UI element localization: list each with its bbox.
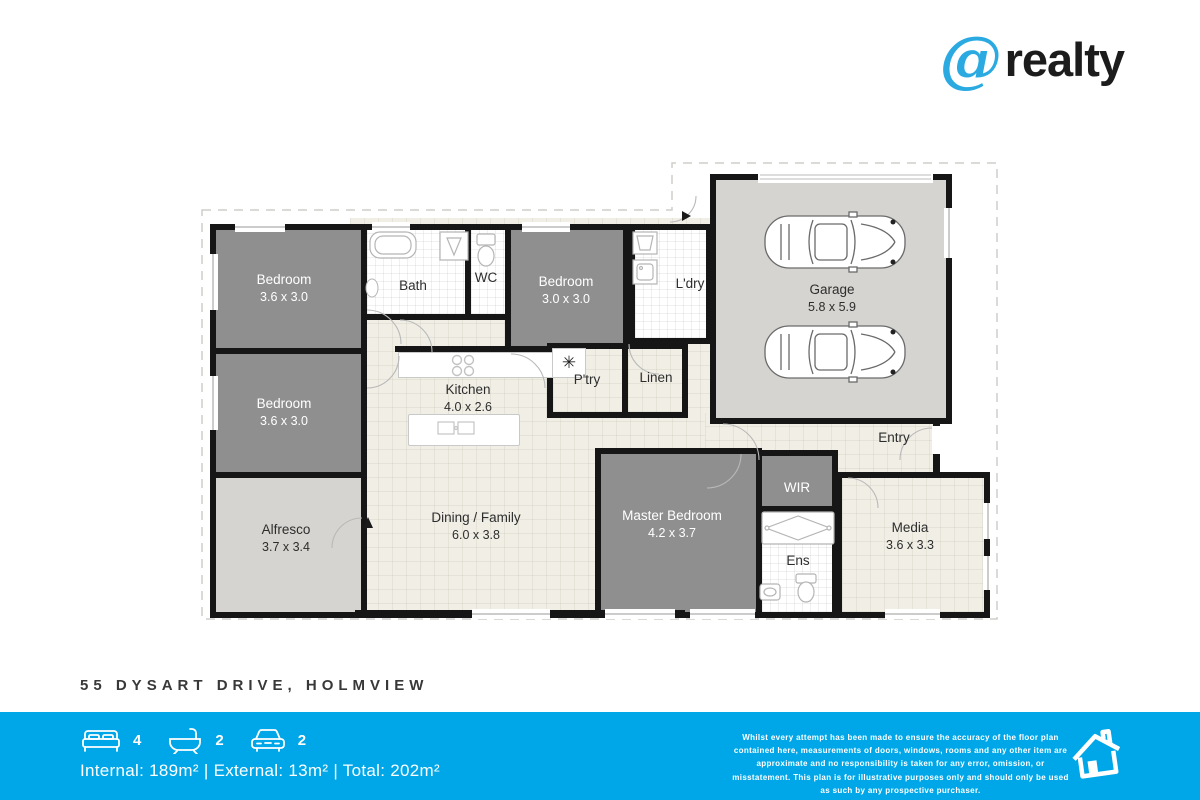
- beds-count: 4: [133, 732, 141, 749]
- logo-at-icon: @: [940, 28, 1002, 90]
- realty-logo: @ realty: [940, 28, 1124, 90]
- area-summary: Internal: 189m² | External: 13m² | Total…: [80, 761, 440, 781]
- room-label-master-bedroom: Master Bedroom4.2 x 3.7: [622, 507, 722, 541]
- kitchen-bench: [398, 352, 554, 378]
- room-label-bedroom-1: Bedroom3.6 x 3.0: [257, 271, 312, 305]
- car-icon: [249, 727, 287, 754]
- room-label-kitchen: Kitchen4.0 x 2.6: [444, 381, 492, 415]
- baths-count: 2: [215, 732, 223, 749]
- room-label-ensuite: Ens: [786, 552, 809, 570]
- room-label-dining-family: Dining / Family6.0 x 3.8: [431, 509, 520, 543]
- room-label-bedroom-2: Bedroom3.0 x 3.0: [539, 273, 594, 307]
- wall-bottom: [355, 610, 685, 618]
- bath-icon: [166, 726, 204, 754]
- property-stats: 4 2 2: [80, 726, 320, 754]
- room-label-laundry: L'dry: [676, 275, 705, 293]
- room-label-alfresco: Alfresco3.7 x 3.4: [262, 521, 311, 555]
- room-label-bath: Bath: [399, 277, 427, 295]
- room-label-wir: WIR: [784, 479, 810, 497]
- property-address: 55 DYSART DRIVE, HOLMVIEW: [80, 677, 428, 694]
- floor-plan: Bedroom3.6 x 3.0 Bath WC Bedroom3.0 x 3.…: [200, 158, 1000, 630]
- appliance-note-icon: ✳: [562, 353, 576, 373]
- room-bath: [361, 224, 471, 320]
- page: { "colors":{"bar_blue":"#00a7e8","logo_b…: [0, 0, 1200, 800]
- cars-count: 2: [298, 732, 306, 749]
- room-label-pantry: P'try: [574, 371, 601, 389]
- room-label-entry: Entry: [878, 429, 910, 447]
- room-label-linen: Linen: [639, 369, 672, 387]
- room-label-wc: WC: [475, 269, 498, 287]
- footer-bar: 4 2 2 Internal: 189m² | External: 13m² |…: [0, 712, 1200, 800]
- room-label-media: Media3.6 x 3.3: [886, 519, 934, 553]
- house-icon: [1062, 720, 1135, 794]
- kitchen-island: [408, 414, 520, 446]
- wall-entry-right: [933, 418, 940, 478]
- logo-name: realty: [1005, 36, 1124, 83]
- room-label-bedroom-3: Bedroom3.6 x 3.0: [257, 395, 312, 429]
- room-label-garage: Garage5.8 x 5.9: [808, 281, 856, 315]
- disclaimer-text: Whilst every attempt has been made to en…: [728, 731, 1073, 797]
- bed-icon: [80, 726, 122, 754]
